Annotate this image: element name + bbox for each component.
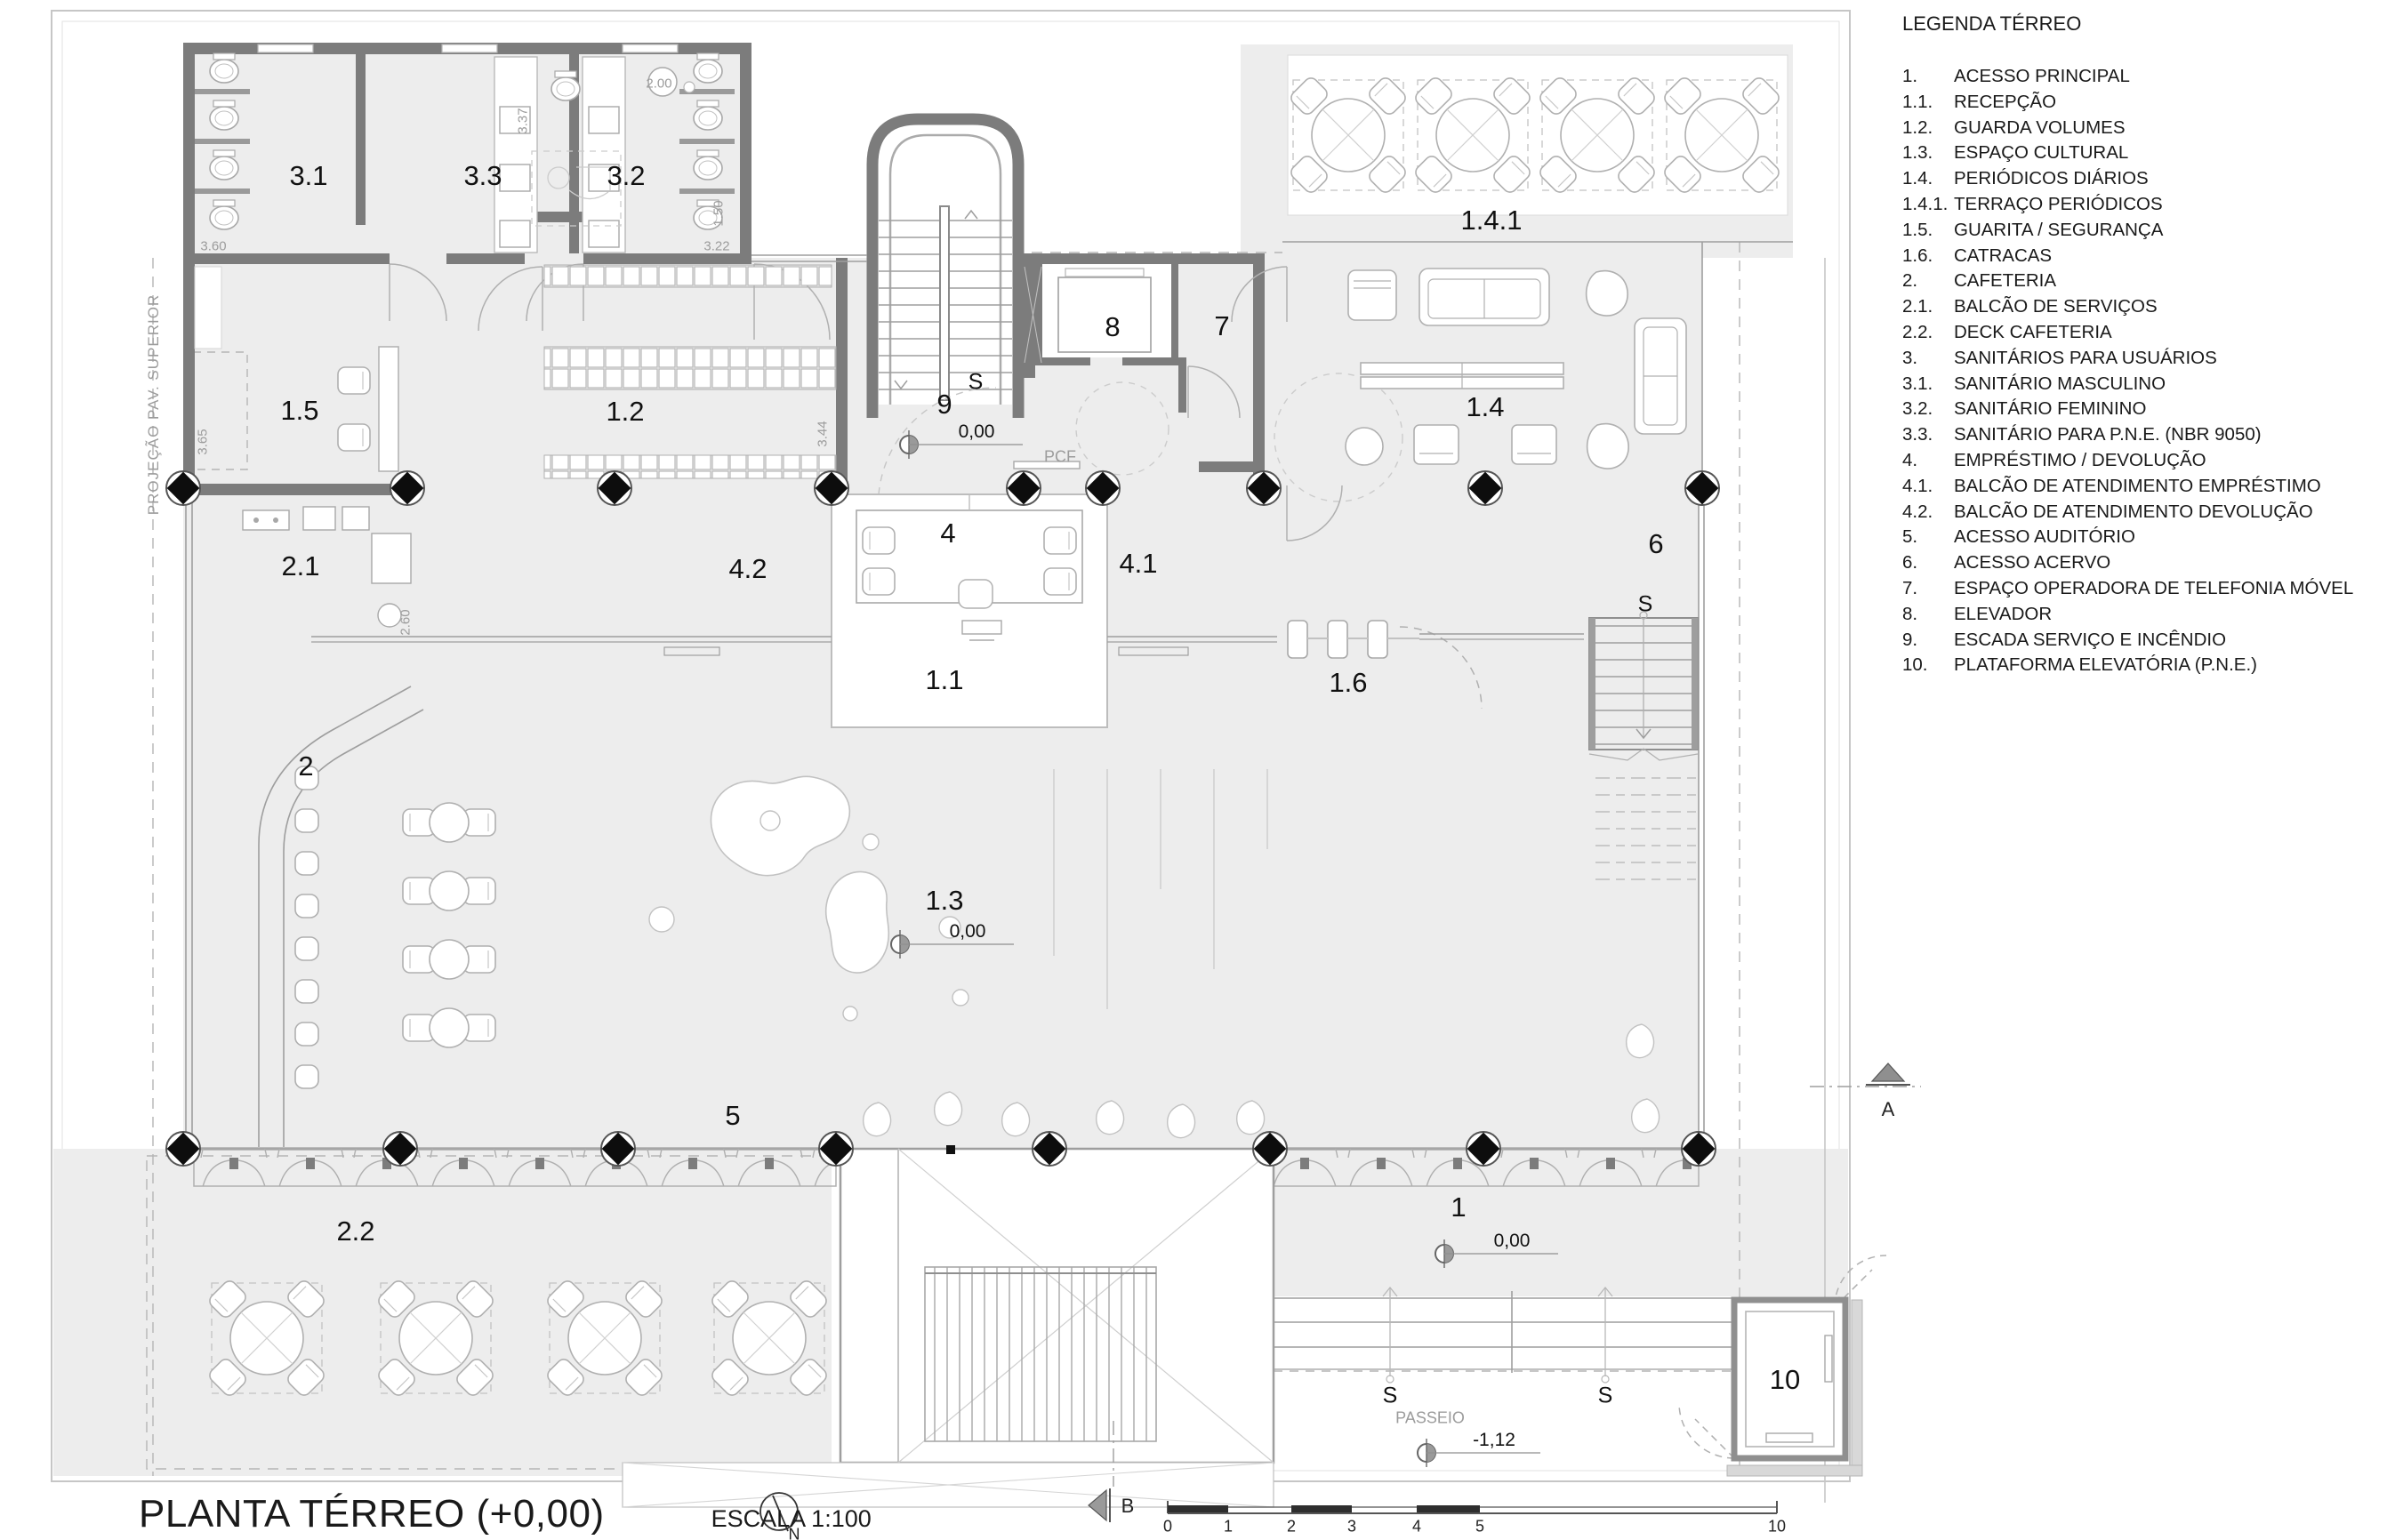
legend-item-number: 1.2. [1902, 116, 1954, 141]
legend-item-label: CATRACAS [1954, 244, 2390, 269]
legend-item-label: GUARDA VOLUMES [1954, 116, 2390, 141]
service-stair-tower [872, 119, 1018, 494]
legend-item-label: BALCÃO DE ATENDIMENTO EMPRÉSTIMO [1954, 474, 2390, 500]
legend-item: 1.2.GUARDA VOLUMES [1902, 116, 2390, 141]
legend-item: 1.3.ESPAÇO CULTURAL [1902, 140, 2390, 166]
legend-item-number: 1.4. [1902, 166, 1954, 192]
legend-item-label: SANITÁRIO FEMININO [1954, 397, 2390, 422]
legend-item-number: 1.3. [1902, 140, 1954, 166]
legend-item-label: EMPRÉSTIMO / DEVOLUÇÃO [1954, 448, 2390, 474]
loan-desk [832, 494, 1107, 727]
legend-item-label: ESPAÇO OPERADORA DE TELEFONIA MÓVEL [1954, 576, 2390, 602]
legend-item-number: 3.3. [1902, 422, 1954, 448]
legend-item: 3.2.SANITÁRIO FEMININO [1902, 397, 2390, 422]
legend-item-label: BALCÃO DE ATENDIMENTO DEVOLUÇÃO [1954, 500, 2390, 525]
legend-item-number: 3.1. [1902, 372, 1954, 397]
legend-item: 7.ESPAÇO OPERADORA DE TELEFONIA MÓVEL [1902, 576, 2390, 602]
legend-item-label: BALCÃO DE SERVIÇOS [1954, 294, 2390, 320]
legend-item: 10.PLATAFORMA ELEVATÓRIA (P.N.E.) [1902, 653, 2390, 678]
legend-item: 3.3.SANITÁRIO PARA P.N.E. (NBR 9050) [1902, 422, 2390, 448]
legend-item-number: 1.6. [1902, 244, 1954, 269]
legend-item: 1.4.PERIÓDICOS DIÁRIOS [1902, 166, 2390, 192]
legend-item: 4.EMPRÉSTIMO / DEVOLUÇÃO [1902, 448, 2390, 474]
legend-item-number: 6. [1902, 550, 1954, 576]
legend-item-number: 1.4.1. [1902, 192, 1954, 218]
legend-item-label: PLATAFORMA ELEVATÓRIA (P.N.E.) [1954, 653, 2390, 678]
legend-item: 4.1.BALCÃO DE ATENDIMENTO EMPRÉSTIMO [1902, 474, 2390, 500]
legend-item-number: 10. [1902, 653, 1954, 678]
legend-item: 4.2.BALCÃO DE ATENDIMENTO DEVOLUÇÃO [1902, 500, 2390, 525]
legend-item: 8.ELEVADOR [1902, 602, 2390, 628]
legend-item-number: 1.1. [1902, 90, 1954, 116]
legend-item-number: 7. [1902, 576, 1954, 602]
legend-item-number: 1. [1902, 64, 1954, 90]
legend-item-number: 3. [1902, 346, 1954, 372]
legend-item: 2.1.BALCÃO DE SERVIÇOS [1902, 294, 2390, 320]
legend-item-label: ESPAÇO CULTURAL [1954, 140, 2390, 166]
legend-item: 1.4.1.TERRAÇO PERIÓDICOS [1902, 192, 2390, 218]
legend-item-label: SANITÁRIOS PARA USUÁRIOS [1954, 346, 2390, 372]
legend-item-label: SANITÁRIO PARA P.N.E. (NBR 9050) [1954, 422, 2390, 448]
legend-item: 3.1.SANITÁRIO MASCULINO [1902, 372, 2390, 397]
legend-item-label: PERIÓDICOS DIÁRIOS [1954, 166, 2390, 192]
legend-item-label: ACESSO PRINCIPAL [1954, 64, 2390, 90]
legend-item: 1.6.CATRACAS [1902, 244, 2390, 269]
legend-item-number: 4.1. [1902, 474, 1954, 500]
legend-item-number: 9. [1902, 628, 1954, 654]
drawing-scale: ESCALA 1:100 [711, 1505, 872, 1533]
floor-plan-sheet: 3.13.33.21.4.11.51.29871.42.14.244.161.1… [0, 0, 2395, 1540]
legend-item: 3.SANITÁRIOS PARA USUÁRIOS [1902, 346, 2390, 372]
legend-item: 1.1.RECEPÇÃO [1902, 90, 2390, 116]
legend-heading: LEGENDA TÉRREO [1902, 12, 2390, 36]
legend-item-number: 4.2. [1902, 500, 1954, 525]
drawing-title: PLANTA TÉRREO (+0,00) [139, 1492, 605, 1536]
legend-item-label: CAFETERIA [1954, 269, 2390, 294]
legend-item-label: SANITÁRIO MASCULINO [1954, 372, 2390, 397]
legend-item: 9.ESCADA SERVIÇO E INCÊNDIO [1902, 628, 2390, 654]
legend-item-label: TERRAÇO PERIÓDICOS [1954, 192, 2390, 218]
legend-items: 1.ACESSO PRINCIPAL1.1.RECEPÇÃO1.2.GUARDA… [1902, 64, 2390, 678]
legend-item-label: GUARITA / SEGURANÇA [1954, 218, 2390, 244]
legend-item-label: ESCADA SERVIÇO E INCÊNDIO [1954, 628, 2390, 654]
legend-item-number: 1.5. [1902, 218, 1954, 244]
legend-item-label: DECK CAFETERIA [1954, 320, 2390, 346]
legend-item-number: 4. [1902, 448, 1954, 474]
legend-item-label: ACESSO ACERVO [1954, 550, 2390, 576]
legend-item-number: 3.2. [1902, 397, 1954, 422]
legend-item-label: RECEPÇÃO [1954, 90, 2390, 116]
platform-lift [1727, 1300, 1862, 1476]
elevator [1025, 264, 1171, 363]
legend-item-number: 2.2. [1902, 320, 1954, 346]
legend-item: 2.CAFETERIA [1902, 269, 2390, 294]
legend-item-number: 2.1. [1902, 294, 1954, 320]
legend-item-label: ELEVADOR [1954, 602, 2390, 628]
legend-item: 6.ACESSO ACERVO [1902, 550, 2390, 576]
legend-item-number: 2. [1902, 269, 1954, 294]
legend-item-label: ACESSO AUDITÓRIO [1954, 525, 2390, 550]
legend-item: 1.ACESSO PRINCIPAL [1902, 64, 2390, 90]
titleblock: PLANTA TÉRREO (+0,00) ESCALA 1:100 [139, 1492, 872, 1536]
entry-steps [1274, 1287, 1862, 1476]
legend-item: 5.ACESSO AUDITÓRIO [1902, 525, 2390, 550]
legend-item: 2.2.DECK CAFETERIA [1902, 320, 2390, 346]
legend-item-number: 5. [1902, 525, 1954, 550]
legend-item-number: 8. [1902, 602, 1954, 628]
legend: LEGENDA TÉRREO 1.ACESSO PRINCIPAL1.1.REC… [1902, 12, 2390, 678]
legend-item: 1.5.GUARITA / SEGURANÇA [1902, 218, 2390, 244]
